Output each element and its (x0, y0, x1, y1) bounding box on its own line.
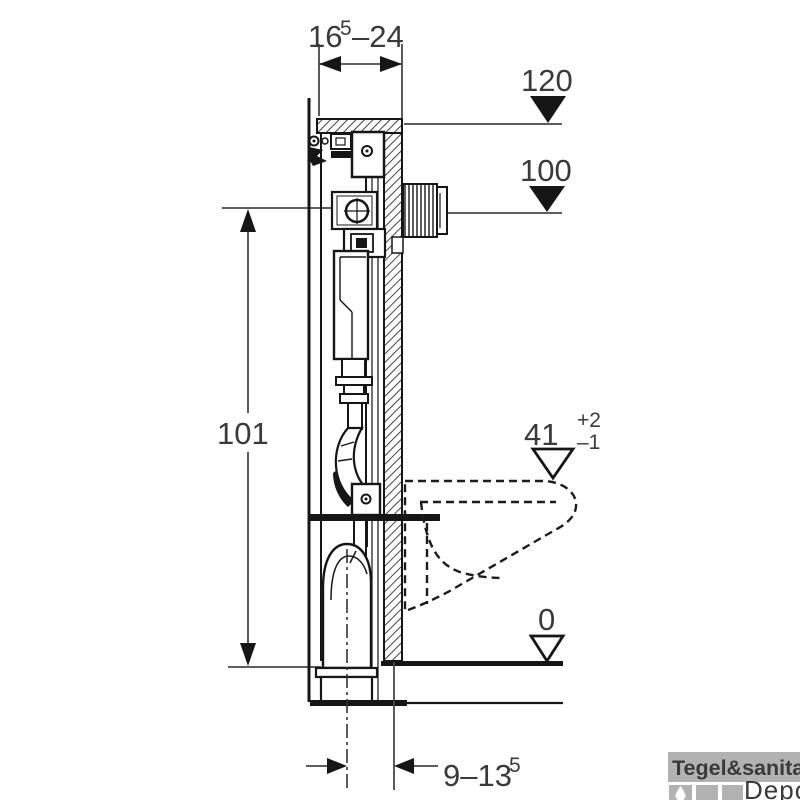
arrowhead-right-icon (327, 758, 347, 774)
dim-frame-height: 101 (217, 416, 269, 451)
installation-diagram: 16 5 –24 120 100 101 (0, 0, 800, 800)
dim-top-width-sup: 5 (340, 17, 352, 40)
watermark-tile (722, 785, 743, 800)
arrowhead-up-icon (240, 209, 256, 232)
frame-rail-section (384, 133, 402, 661)
dimension-level-120: 120 (404, 63, 573, 124)
arrowhead-down-icon (240, 643, 256, 666)
arrowhead-right-icon (380, 56, 402, 72)
dim-top-width-value: 16 (308, 19, 342, 54)
dim-bowl-height-plus: +2 (577, 409, 601, 432)
dimension-level-100: 100 (445, 153, 572, 213)
level-marker-filled-icon (529, 186, 565, 212)
arrowhead-left-icon (394, 758, 414, 774)
dim-supply-level: 100 (520, 153, 572, 188)
dim-outlet-offset: 9–13 (443, 758, 512, 793)
level-marker-open-icon (531, 636, 563, 661)
dimension-bowl-height: 41 +2 –1 (524, 409, 601, 478)
dimension-floor-level: 0 (531, 602, 563, 661)
watermark-tile (696, 785, 718, 800)
arrowhead-left-icon (319, 56, 341, 72)
dim-floor-level: 0 (538, 602, 555, 637)
level-marker-open-icon (533, 449, 573, 478)
flush-bend (333, 428, 380, 547)
toilet-bowl-outline (405, 481, 576, 611)
wc-fixing-bar (310, 514, 440, 521)
dim-bowl-height-minus: –1 (577, 431, 600, 454)
installation-diagram-page: 16 5 –24 120 100 101 (0, 0, 800, 800)
dim-bowl-height: 41 (524, 417, 558, 452)
dim-outlet-offset-sup: 5 (509, 754, 521, 777)
level-marker-filled-icon (530, 96, 566, 123)
dimension-top-width: 16 5 –24 (308, 17, 404, 122)
finished-floor-line (381, 661, 563, 666)
dim-flush-level: 120 (521, 63, 573, 98)
dimension-frame-height: 101 (217, 208, 332, 667)
watermark: Tegel&sanitair Depot (668, 752, 800, 800)
concealed-cistern (334, 251, 372, 429)
dim-top-width-range: –24 (352, 19, 404, 54)
watermark-sub: Depot (744, 775, 800, 800)
